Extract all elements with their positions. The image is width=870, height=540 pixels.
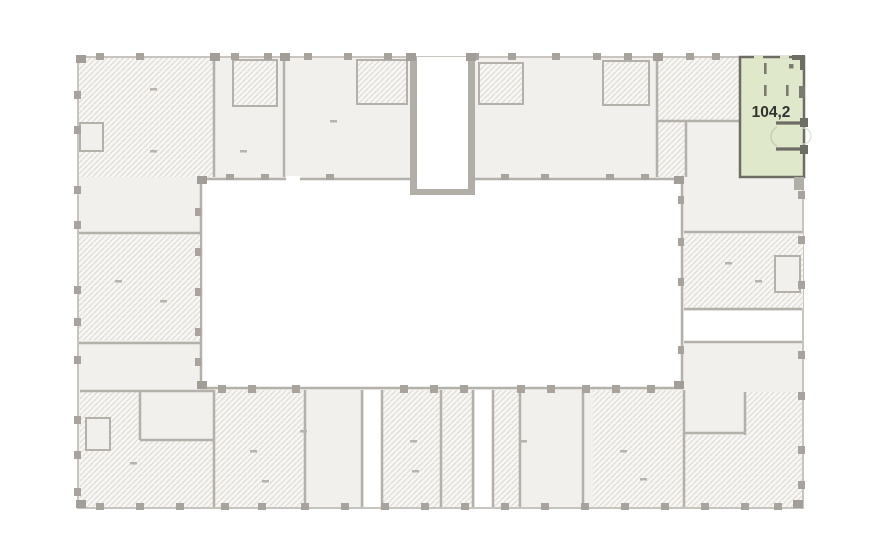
interior-room	[86, 418, 110, 450]
window-tick	[647, 385, 655, 393]
door-gap	[286, 176, 300, 182]
window-tick	[74, 286, 81, 294]
window-tick	[195, 358, 201, 366]
window-tick	[218, 385, 226, 393]
pier	[210, 53, 220, 61]
pier	[674, 381, 684, 389]
interior-mark	[410, 440, 417, 443]
window-tick	[686, 53, 694, 60]
hatched-bath	[603, 61, 649, 105]
window-tick	[195, 288, 201, 296]
window-tick	[593, 53, 601, 60]
window-tick	[678, 196, 684, 204]
interior-mark	[150, 88, 157, 91]
window-tick	[258, 503, 266, 510]
core-wall	[410, 189, 475, 195]
interior-room	[80, 123, 103, 151]
corridor-gap	[364, 390, 381, 507]
floor-plan: 104,2	[0, 0, 870, 540]
window-tick	[96, 503, 104, 510]
hatched-unit	[382, 390, 441, 507]
window-tick	[678, 238, 684, 246]
interior-mark	[160, 300, 167, 303]
window-tick	[798, 481, 805, 489]
window-tick	[344, 53, 352, 60]
interior-mark	[150, 150, 157, 153]
window-tick	[460, 385, 468, 393]
hatched-unit	[79, 58, 213, 177]
window-tick	[74, 91, 81, 99]
window-tick	[384, 53, 392, 60]
hatched-unit	[593, 390, 684, 507]
hatched-unit	[214, 390, 305, 507]
window-tick	[195, 248, 201, 256]
window-tick	[508, 53, 516, 60]
pier	[674, 176, 684, 184]
window-tick	[678, 278, 684, 286]
hatched-unit	[443, 390, 473, 507]
window-tick	[136, 503, 144, 510]
pier	[280, 53, 290, 61]
hatched-bath	[479, 63, 523, 104]
core-wall	[410, 57, 417, 195]
interior-room	[775, 256, 800, 292]
window-tick	[741, 503, 749, 510]
window-tick	[798, 191, 805, 199]
window-tick	[74, 126, 81, 134]
interior-mark	[130, 462, 137, 465]
window-tick	[430, 385, 438, 393]
window-tick	[301, 503, 309, 510]
hatched-bath	[357, 60, 407, 104]
window-tick	[541, 503, 549, 510]
corridor-gap	[684, 311, 802, 341]
window-tick	[612, 385, 620, 393]
window-tick	[74, 221, 81, 229]
window-tick	[798, 446, 805, 454]
window-tick	[400, 385, 408, 393]
pier	[793, 500, 803, 508]
window-gap	[780, 56, 789, 59]
window-tick	[798, 351, 805, 359]
interior-mark	[620, 450, 627, 453]
window-tick	[292, 385, 300, 393]
interior-mark	[250, 450, 257, 453]
interior-mark	[520, 440, 527, 443]
interior-mark	[115, 280, 122, 283]
window-tick	[195, 208, 201, 216]
window-tick	[798, 236, 805, 244]
hatched-bath	[233, 60, 277, 106]
pier	[406, 53, 416, 61]
interior-mark	[725, 262, 732, 265]
window-tick	[326, 174, 334, 180]
interior-mark	[240, 150, 247, 153]
interior-mark	[262, 480, 269, 483]
interior-mark	[330, 120, 337, 123]
window-tick	[231, 53, 239, 60]
window-tick	[74, 451, 81, 459]
window-gap	[754, 56, 763, 59]
wall-stub	[794, 177, 804, 190]
window-tick	[381, 503, 389, 510]
window-tick	[74, 356, 81, 364]
window-tick	[96, 53, 104, 60]
window-tick	[624, 53, 632, 60]
interior-mark	[300, 430, 307, 433]
window-tick	[74, 318, 81, 326]
window-tick	[501, 503, 509, 510]
window-tick	[517, 385, 525, 393]
hatched-unit	[79, 235, 200, 340]
window-tick	[74, 416, 81, 424]
pier	[653, 53, 663, 61]
interior-mark	[640, 478, 647, 481]
core-shaft	[410, 57, 475, 195]
window-tick	[221, 503, 229, 510]
window-tick	[74, 488, 81, 496]
window-tick	[176, 503, 184, 510]
window-tick	[421, 503, 429, 510]
window-tick	[701, 503, 709, 510]
window-tick	[712, 53, 720, 60]
window-tick	[641, 174, 649, 180]
window-tick	[341, 503, 349, 510]
window-tick	[547, 385, 555, 393]
window-tick	[661, 503, 669, 510]
interior-mark	[755, 280, 762, 283]
pier	[197, 381, 207, 389]
corridor-gap	[475, 390, 492, 507]
pier	[76, 55, 86, 63]
pier	[76, 500, 86, 508]
window-tick	[582, 385, 590, 393]
window-tick	[552, 53, 560, 60]
courtyard	[201, 179, 682, 388]
window-tick	[248, 385, 256, 393]
window-tick	[304, 53, 312, 60]
window-tick	[226, 174, 234, 180]
window-tick	[798, 281, 805, 289]
window-tick	[678, 346, 684, 354]
hatched-unit	[493, 390, 520, 507]
unit-104-2[interactable]: 104,2	[740, 55, 811, 190]
unit-area-label: 104,2	[752, 104, 791, 121]
window-tick	[774, 503, 782, 510]
window-tick	[195, 328, 201, 336]
window-tick	[581, 503, 589, 510]
window-tick	[621, 503, 629, 510]
window-tick	[606, 174, 614, 180]
stair-core	[410, 57, 475, 195]
core-wall	[468, 57, 475, 195]
window-tick	[261, 174, 269, 180]
window-tick	[541, 174, 549, 180]
window-tick	[501, 174, 509, 180]
interior-mark	[412, 470, 419, 473]
window-tick	[136, 53, 144, 60]
window-tick	[74, 186, 81, 194]
floor-plan-page: 104,2	[0, 0, 870, 540]
pier	[466, 53, 476, 61]
window-tick	[461, 503, 469, 510]
window-tick	[264, 53, 272, 60]
pier	[197, 176, 207, 184]
window-tick	[798, 392, 805, 400]
